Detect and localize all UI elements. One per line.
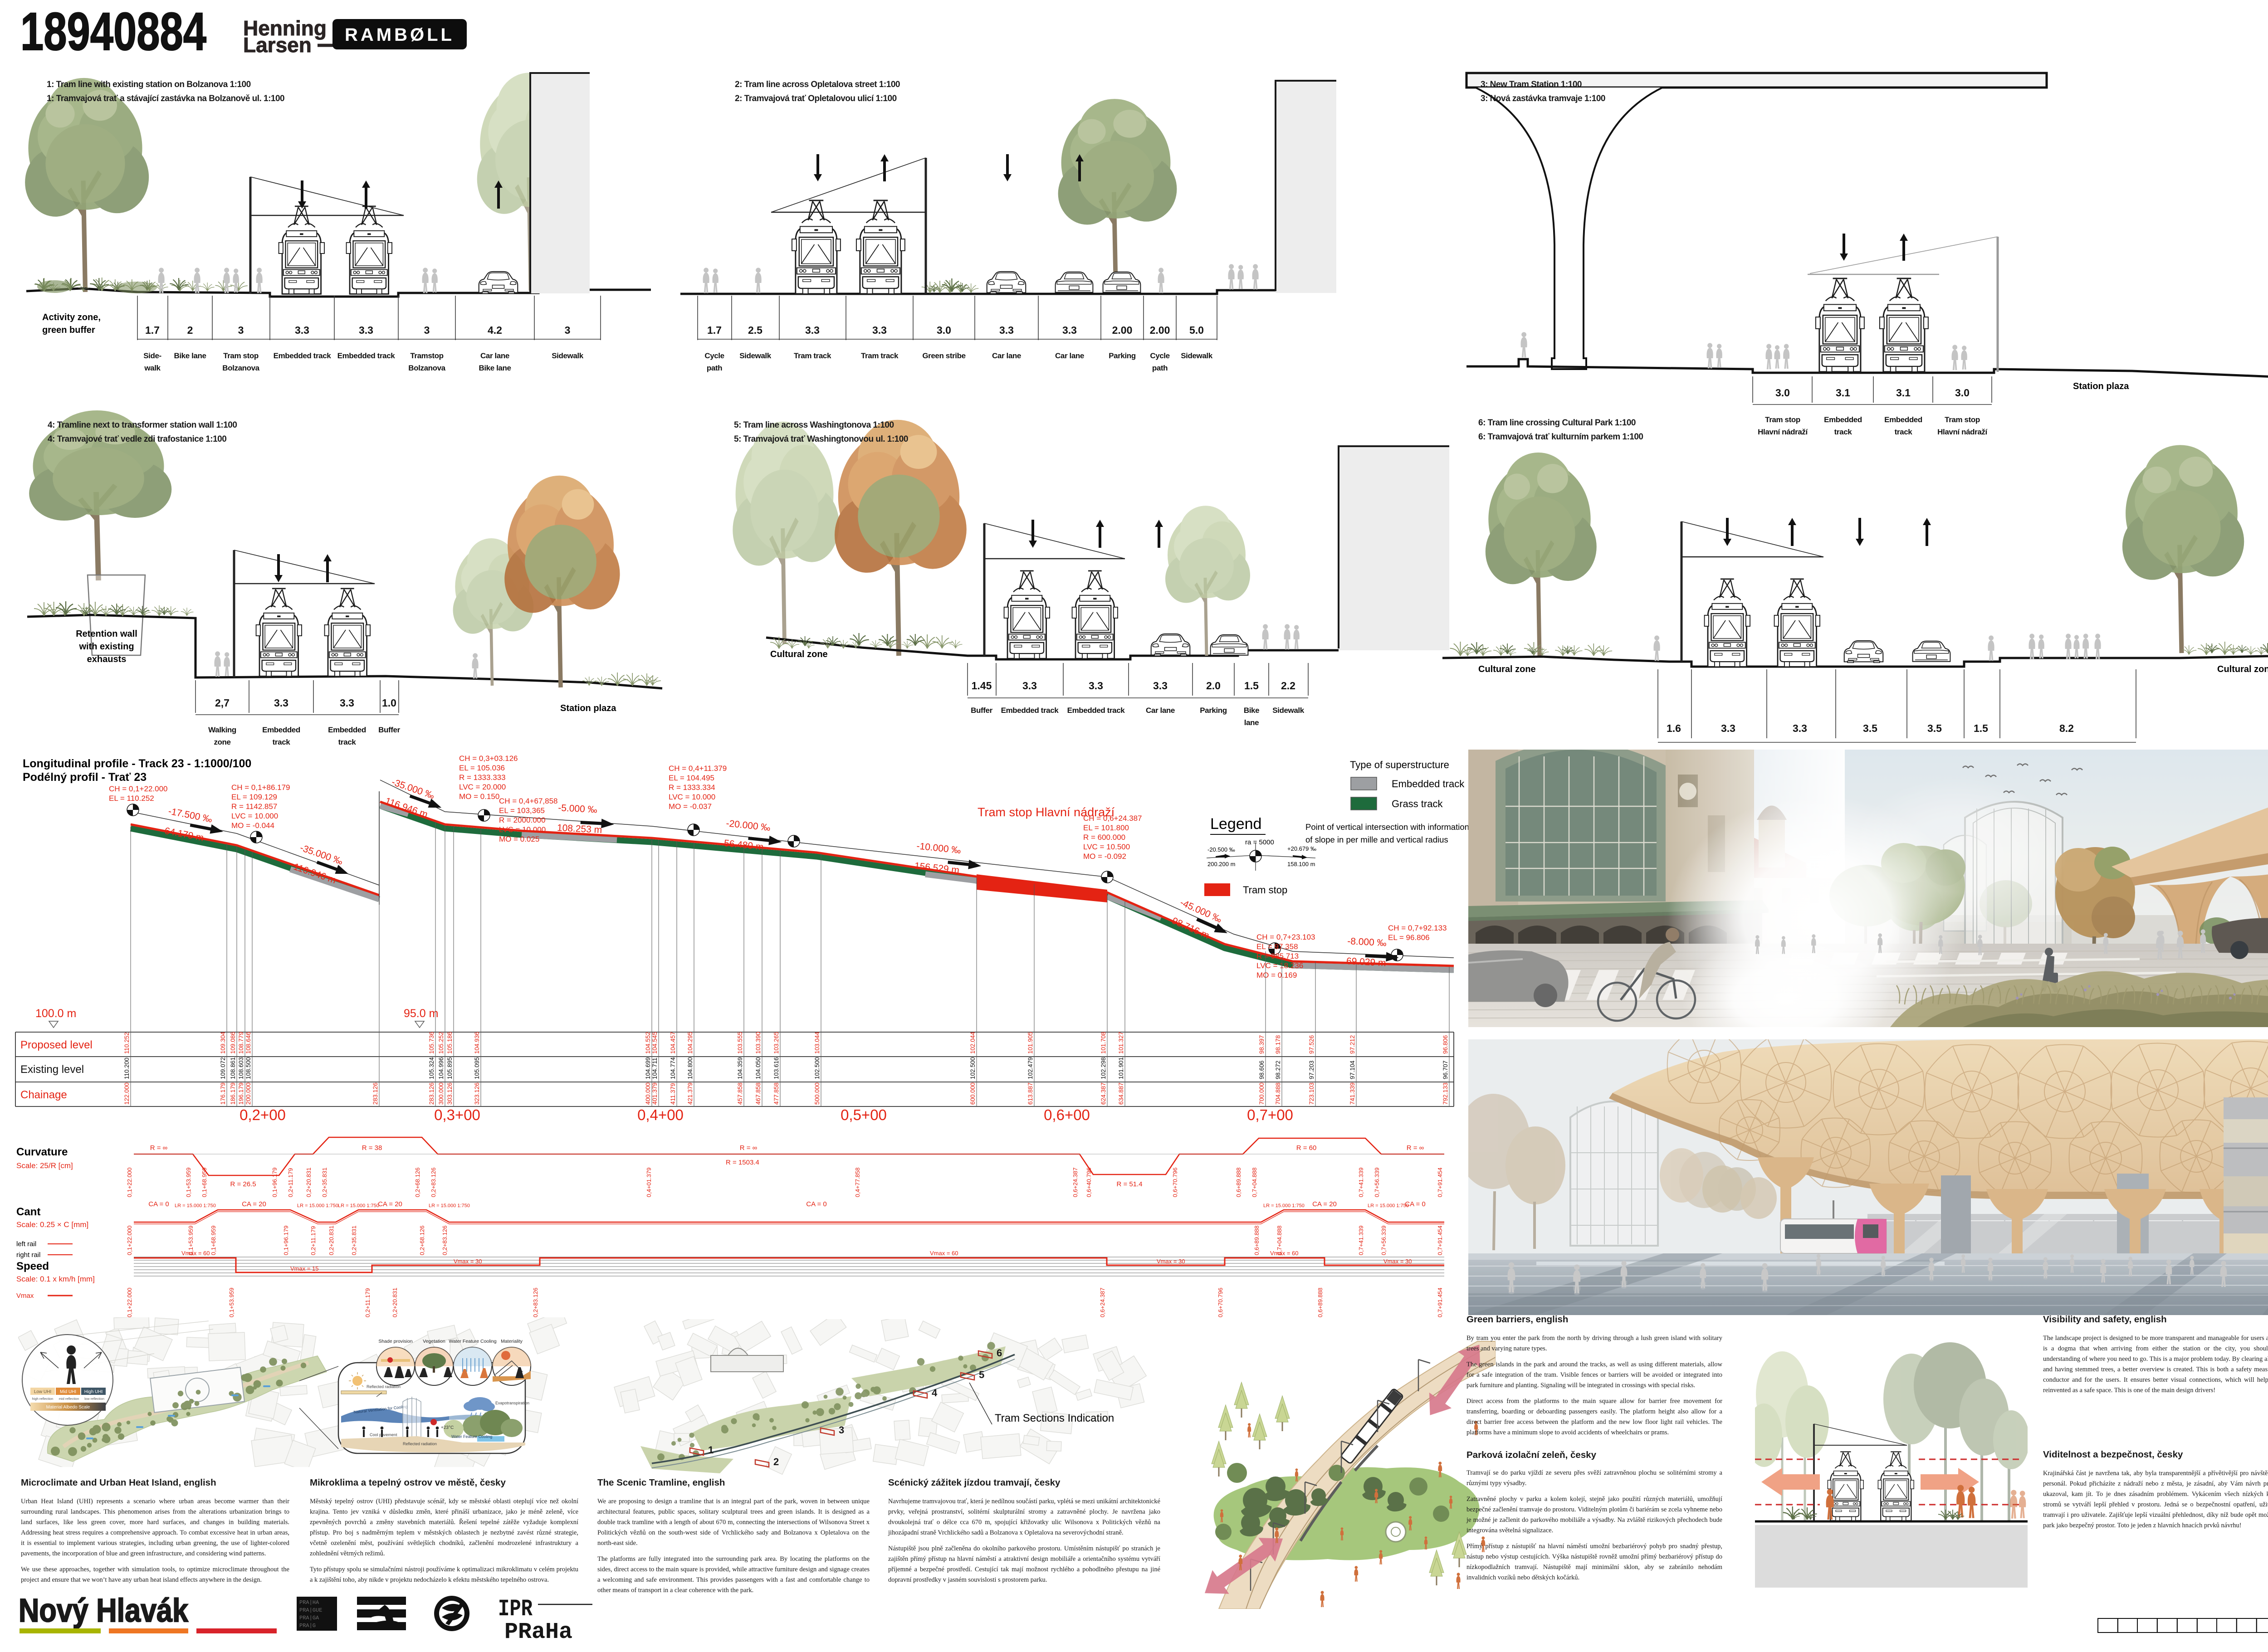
svg-text:Embedded: Embedded bbox=[1824, 415, 1862, 424]
svg-text:1.5: 1.5 bbox=[1974, 722, 1988, 734]
svg-text:R = 1333.333: R = 1333.333 bbox=[459, 773, 506, 782]
svg-text:0,6+24.387: 0,6+24.387 bbox=[1072, 1168, 1079, 1197]
svg-text:0,7+56.339: 0,7+56.339 bbox=[1374, 1168, 1380, 1197]
svg-text:108.861: 108.861 bbox=[230, 1057, 236, 1079]
svg-text:6: Tram line crossing Cultural: 6: Tram line crossing Cultural Park 1:10… bbox=[1478, 418, 1636, 428]
svg-text:104.050: 104.050 bbox=[755, 1057, 762, 1079]
svg-text:-17.500 ‰: -17.500 ‰ bbox=[167, 806, 213, 824]
svg-text:R = ∞: R = ∞ bbox=[1407, 1144, 1424, 1152]
svg-text:Bike lane: Bike lane bbox=[174, 351, 206, 360]
svg-text:with existing: with existing bbox=[78, 642, 134, 652]
svg-text:477.858: 477.858 bbox=[773, 1082, 780, 1105]
svg-text:Low UHI: Low UHI bbox=[34, 1389, 51, 1394]
svg-text:MO = -0.092: MO = -0.092 bbox=[1083, 852, 1126, 861]
svg-text:3.3: 3.3 bbox=[805, 324, 820, 336]
svg-text:Scale: 0.1 x km/h [mm]: Scale: 0.1 x km/h [mm] bbox=[16, 1275, 95, 1283]
svg-text:69.029 m: 69.029 m bbox=[1346, 956, 1386, 969]
svg-text:104.699: 104.699 bbox=[645, 1057, 651, 1079]
svg-text:track: track bbox=[1834, 428, 1853, 436]
svg-text:Evapotranspiration: Evapotranspiration bbox=[495, 1401, 529, 1405]
svg-text:103.616: 103.616 bbox=[773, 1057, 780, 1079]
svg-text:EL = 110.252: EL = 110.252 bbox=[109, 794, 154, 803]
svg-text:400.000: 400.000 bbox=[645, 1082, 651, 1105]
svg-text:Embedded track: Embedded track bbox=[1001, 706, 1059, 715]
svg-text:0,1+68.959: 0,1+68.959 bbox=[201, 1168, 208, 1197]
svg-text:3: 3 bbox=[238, 324, 244, 336]
svg-text:Tram track: Tram track bbox=[861, 351, 899, 360]
svg-text:-20.500 ‰: -20.500 ‰ bbox=[1207, 846, 1235, 853]
svg-text:457.858: 457.858 bbox=[737, 1082, 743, 1105]
svg-text:Nový Hlavák: Nový Hlavák bbox=[19, 1593, 189, 1629]
svg-text:Car lane: Car lane bbox=[1146, 706, 1175, 715]
svg-text:R = 60: R = 60 bbox=[1296, 1144, 1317, 1152]
svg-text:Reflected radiation: Reflected radiation bbox=[403, 1442, 437, 1446]
svg-text:5: 5 bbox=[979, 1369, 984, 1380]
svg-text:Cultural zone: Cultural zone bbox=[2217, 664, 2268, 674]
svg-text:MO = -0.037: MO = -0.037 bbox=[669, 802, 712, 811]
svg-text:110.252: 110.252 bbox=[123, 1032, 130, 1054]
svg-text:110.200: 110.200 bbox=[123, 1057, 130, 1079]
svg-text:467.858: 467.858 bbox=[755, 1082, 762, 1105]
svg-text:8.2: 8.2 bbox=[2059, 722, 2074, 734]
svg-text:Cultural zone: Cultural zone bbox=[770, 649, 828, 659]
svg-text:98.272: 98.272 bbox=[1275, 1061, 1281, 1079]
svg-text:104.800: 104.800 bbox=[687, 1057, 694, 1079]
svg-text:3.5: 3.5 bbox=[1863, 722, 1877, 734]
svg-text:+23°C: +23°C bbox=[441, 1425, 454, 1430]
svg-text:0,1+22.000: 0,1+22.000 bbox=[126, 1226, 133, 1255]
svg-text:105.252: 105.252 bbox=[438, 1032, 445, 1054]
svg-text:High UHI: High UHI bbox=[84, 1389, 103, 1394]
svg-text:EL = 97.358: EL = 97.358 bbox=[1256, 942, 1298, 951]
svg-text:EL = 96.806: EL = 96.806 bbox=[1388, 933, 1430, 942]
svg-text:EL = 103,365: EL = 103,365 bbox=[499, 806, 545, 815]
svg-text:R = 1503.4: R = 1503.4 bbox=[726, 1159, 759, 1166]
svg-text:1.7: 1.7 bbox=[707, 324, 722, 336]
svg-text:103.044: 103.044 bbox=[814, 1032, 821, 1054]
svg-text:right rail: right rail bbox=[16, 1251, 40, 1259]
svg-text:0,2+11.179: 0,2+11.179 bbox=[364, 1288, 371, 1317]
svg-text:MO = -0.044: MO = -0.044 bbox=[231, 821, 274, 830]
svg-text:0,3+00: 0,3+00 bbox=[434, 1106, 480, 1123]
svg-text:Car lane: Car lane bbox=[480, 351, 509, 360]
svg-text:Vmax = 60: Vmax = 60 bbox=[930, 1250, 958, 1257]
svg-text:Scale: 0.25 × C [mm]: Scale: 0.25 × C [mm] bbox=[16, 1220, 88, 1229]
svg-text:CH = 0,7+23.103: CH = 0,7+23.103 bbox=[1256, 933, 1315, 941]
svg-text:176.179: 176.179 bbox=[220, 1082, 226, 1105]
svg-text:Embedded: Embedded bbox=[1884, 415, 1922, 424]
svg-text:MO = 0.150: MO = 0.150 bbox=[459, 792, 499, 801]
svg-text:98.606: 98.606 bbox=[1258, 1061, 1265, 1079]
svg-text:Side-: Side- bbox=[143, 351, 161, 360]
svg-text:3.3: 3.3 bbox=[1089, 680, 1103, 692]
svg-text:108.603: 108.603 bbox=[238, 1057, 244, 1079]
svg-text:105.895: 105.895 bbox=[446, 1057, 453, 1079]
svg-text:0,7+91.454: 0,7+91.454 bbox=[1437, 1226, 1443, 1255]
svg-text:Hlavní nádraží: Hlavní nádraží bbox=[1937, 428, 1988, 436]
svg-text:track: track bbox=[273, 738, 291, 746]
svg-text:R = 1333.334: R = 1333.334 bbox=[669, 783, 715, 792]
svg-text:97.203: 97.203 bbox=[1308, 1061, 1315, 1079]
svg-text:102.500: 102.500 bbox=[814, 1057, 821, 1079]
svg-text:3.0: 3.0 bbox=[937, 324, 951, 336]
svg-text:Cant: Cant bbox=[16, 1206, 40, 1218]
svg-text:Embedded track: Embedded track bbox=[337, 351, 396, 360]
svg-text:401.379: 401.379 bbox=[651, 1082, 658, 1105]
svg-text:Water Feature Cooling: Water Feature Cooling bbox=[449, 1339, 496, 1344]
svg-text:LR = 15.000 1:750: LR = 15.000 1:750 bbox=[429, 1203, 470, 1209]
svg-text:-10.000 ‰: -10.000 ‰ bbox=[916, 841, 961, 856]
svg-text:Tram stop: Tram stop bbox=[223, 351, 259, 360]
svg-text:track: track bbox=[338, 738, 357, 746]
svg-text:3.3: 3.3 bbox=[1062, 324, 1077, 336]
svg-text:792.133: 792.133 bbox=[1442, 1082, 1449, 1105]
svg-text:LR = 15.000 1:750: LR = 15.000 1:750 bbox=[175, 1203, 216, 1209]
svg-text:LVC = 10.000: LVC = 10.000 bbox=[231, 812, 278, 820]
svg-text:Vmax = 15: Vmax = 15 bbox=[290, 1265, 319, 1272]
svg-text:Tram stop Hlavní nádraží: Tram stop Hlavní nádraží bbox=[978, 805, 1115, 819]
svg-text:500.000: 500.000 bbox=[814, 1082, 821, 1105]
svg-text:3.3: 3.3 bbox=[1793, 722, 1807, 734]
svg-text:Vmax = 30: Vmax = 30 bbox=[1383, 1258, 1412, 1265]
svg-text:624.387: 624.387 bbox=[1100, 1082, 1107, 1105]
svg-text:LVC = 10.500: LVC = 10.500 bbox=[1083, 843, 1130, 851]
svg-text:0,1+53.959: 0,1+53.959 bbox=[185, 1168, 192, 1197]
svg-text:LVC = 10.000: LVC = 10.000 bbox=[669, 793, 715, 801]
svg-text:102.500: 102.500 bbox=[969, 1057, 976, 1079]
svg-text:CH = 0,1+86.179: CH = 0,1+86.179 bbox=[231, 783, 290, 792]
svg-text:PRA|G: PRA|G bbox=[299, 1623, 316, 1629]
svg-text:track: track bbox=[1895, 428, 1913, 436]
svg-text:Tram track: Tram track bbox=[794, 351, 831, 360]
svg-text:0,4+77.858: 0,4+77.858 bbox=[854, 1168, 861, 1197]
svg-text:0,1+96.179: 0,1+96.179 bbox=[283, 1226, 289, 1255]
svg-text:104.552: 104.552 bbox=[645, 1032, 651, 1054]
svg-text:Bolzanova: Bolzanova bbox=[222, 364, 259, 372]
svg-text:Podélný profil - Trať 23: Podélný profil - Trať 23 bbox=[23, 771, 147, 784]
svg-text:lane: lane bbox=[1244, 718, 1259, 727]
svg-text:path: path bbox=[1152, 364, 1168, 372]
svg-text:0,2+20.831: 0,2+20.831 bbox=[328, 1226, 335, 1255]
svg-text:Bike lane: Bike lane bbox=[479, 364, 511, 372]
svg-text:2: Tram line across Opletalova: 2: Tram line across Opletalova street 1:… bbox=[735, 80, 900, 89]
svg-text:left rail: left rail bbox=[16, 1240, 36, 1248]
svg-text:Material Albedo Scale: Material Albedo Scale bbox=[46, 1405, 90, 1410]
svg-text:EL = 101.800: EL = 101.800 bbox=[1083, 824, 1129, 832]
svg-text:R = 51.4: R = 51.4 bbox=[1116, 1180, 1142, 1188]
svg-text:101.905: 101.905 bbox=[1027, 1032, 1034, 1054]
svg-text:105.324: 105.324 bbox=[428, 1057, 435, 1079]
svg-text:PRA|HA: PRA|HA bbox=[299, 1599, 319, 1606]
svg-text:2: 2 bbox=[773, 1456, 779, 1467]
svg-text:Longitudinal profile - Track 2: Longitudinal profile - Track 23 - 1:1000… bbox=[23, 757, 251, 770]
svg-text:0,7+91.454: 0,7+91.454 bbox=[1437, 1288, 1443, 1317]
svg-text:green buffer: green buffer bbox=[42, 325, 95, 335]
svg-text:PRaHa: PRaHa bbox=[504, 1619, 572, 1645]
svg-text:Vmax = 60: Vmax = 60 bbox=[181, 1250, 210, 1257]
svg-text:0,7+04.888: 0,7+04.888 bbox=[1251, 1168, 1258, 1197]
svg-text:Mid UHI: Mid UHI bbox=[60, 1389, 76, 1394]
svg-text:path: path bbox=[707, 364, 722, 372]
svg-text:Sidewalk: Sidewalk bbox=[739, 351, 772, 360]
svg-text:95.0 m: 95.0 m bbox=[404, 1007, 438, 1020]
svg-text:4.2: 4.2 bbox=[488, 324, 502, 336]
svg-text:101.708: 101.708 bbox=[1100, 1032, 1107, 1054]
svg-text:108.646: 108.646 bbox=[245, 1032, 252, 1054]
svg-text:3: New Tram Station 1:100: 3: New Tram Station 1:100 bbox=[1481, 80, 1582, 89]
svg-text:Grass track: Grass track bbox=[1392, 798, 1443, 809]
svg-text:0,6+70.796: 0,6+70.796 bbox=[1217, 1288, 1224, 1317]
svg-text:105.186: 105.186 bbox=[446, 1032, 453, 1054]
svg-text:3.3: 3.3 bbox=[1153, 680, 1168, 692]
svg-text:CH = 0,1+22.000: CH = 0,1+22.000 bbox=[109, 785, 167, 793]
svg-text:+20.679 ‰: +20.679 ‰ bbox=[1287, 845, 1316, 852]
svg-text:CA = 0: CA = 0 bbox=[806, 1200, 826, 1208]
svg-text:Sidewalk: Sidewalk bbox=[1181, 351, 1213, 360]
svg-text:R = 38: R = 38 bbox=[362, 1144, 382, 1152]
svg-text:97.526: 97.526 bbox=[1308, 1035, 1315, 1054]
svg-text:MO = 0.025: MO = 0.025 bbox=[499, 835, 539, 843]
svg-text:LR = 15.000 1:750: LR = 15.000 1:750 bbox=[338, 1203, 379, 1209]
svg-text:634.887: 634.887 bbox=[1118, 1082, 1124, 1105]
svg-text:116.946 m: 116.946 m bbox=[292, 862, 337, 886]
svg-text:1.5: 1.5 bbox=[1244, 680, 1259, 692]
svg-text:Sidewalk: Sidewalk bbox=[552, 351, 584, 360]
svg-text:Cool pavement: Cool pavement bbox=[370, 1433, 397, 1437]
svg-text:3: 3 bbox=[839, 1424, 844, 1436]
svg-text:108.779: 108.779 bbox=[238, 1032, 244, 1054]
svg-text:R = 26.5: R = 26.5 bbox=[230, 1180, 256, 1188]
svg-text:0,2+11.179: 0,2+11.179 bbox=[310, 1226, 317, 1255]
svg-text:Scale: 25/R [cm]: Scale: 25/R [cm] bbox=[16, 1161, 73, 1170]
svg-text:-5.000 ‰: -5.000 ‰ bbox=[558, 803, 597, 815]
svg-text:Embedded track: Embedded track bbox=[274, 351, 332, 360]
svg-text:300.000: 300.000 bbox=[438, 1082, 445, 1105]
svg-text:0,6+00: 0,6+00 bbox=[1044, 1106, 1090, 1123]
svg-text:Station plaza: Station plaza bbox=[2073, 381, 2129, 391]
svg-text:Type of superstructure: Type of superstructure bbox=[1350, 759, 1449, 770]
svg-text:1: Tramvajová trať a stávající: 1: Tramvajová trať a stávající zastávka … bbox=[47, 94, 284, 103]
svg-text:0,2+68.126: 0,2+68.126 bbox=[414, 1168, 421, 1197]
svg-text:3.1: 3.1 bbox=[1836, 387, 1850, 399]
svg-text:0,1+96.179: 0,1+96.179 bbox=[271, 1168, 278, 1197]
svg-text:Tram stop: Tram stop bbox=[1243, 884, 1287, 896]
svg-text:0,2+11.179: 0,2+11.179 bbox=[287, 1168, 294, 1197]
svg-text:Curvature: Curvature bbox=[16, 1146, 68, 1158]
svg-text:1.0: 1.0 bbox=[382, 697, 396, 709]
svg-text:Green stribe: Green stribe bbox=[922, 351, 965, 360]
svg-text:-20.000 ‰: -20.000 ‰ bbox=[725, 818, 771, 833]
svg-text:3.3: 3.3 bbox=[295, 324, 309, 336]
svg-text:Legend: Legend bbox=[1210, 815, 1261, 833]
svg-text:Vmax = 60: Vmax = 60 bbox=[1270, 1250, 1299, 1257]
svg-text:0,4+00: 0,4+00 bbox=[637, 1106, 684, 1123]
svg-text:186.179: 186.179 bbox=[230, 1082, 236, 1105]
svg-text:LR = 15.000 1:750: LR = 15.000 1:750 bbox=[297, 1203, 338, 1209]
svg-text:CA = 0: CA = 0 bbox=[148, 1200, 169, 1208]
svg-text:104.711: 104.711 bbox=[651, 1057, 658, 1079]
svg-text:Retention wall: Retention wall bbox=[76, 629, 137, 639]
svg-text:0,7+91.454: 0,7+91.454 bbox=[1437, 1168, 1443, 1197]
svg-text:0,7+41.339: 0,7+41.339 bbox=[1358, 1226, 1364, 1255]
svg-text:Proposed level: Proposed level bbox=[20, 1039, 93, 1051]
svg-text:723.103: 723.103 bbox=[1308, 1082, 1315, 1105]
svg-text:zone: zone bbox=[214, 738, 230, 746]
svg-text:Embedded: Embedded bbox=[328, 726, 366, 734]
svg-text:CH = 0,7+92.133: CH = 0,7+92.133 bbox=[1388, 924, 1447, 932]
svg-text:0,2+35.831: 0,2+35.831 bbox=[351, 1226, 357, 1255]
svg-text:109.304: 109.304 bbox=[220, 1032, 226, 1054]
svg-text:3.3: 3.3 bbox=[872, 324, 887, 336]
svg-text:Embedded track: Embedded track bbox=[1392, 778, 1465, 789]
svg-text:Activity zone,: Activity zone, bbox=[42, 312, 101, 322]
svg-text:Cycle: Cycle bbox=[704, 351, 724, 360]
svg-text:283.126: 283.126 bbox=[372, 1082, 379, 1105]
svg-text:2,7: 2,7 bbox=[215, 697, 230, 709]
svg-text:R = 600.000: R = 600.000 bbox=[1083, 833, 1125, 842]
svg-text:0,6+40.796: 0,6+40.796 bbox=[1085, 1168, 1092, 1197]
svg-text:mid reflection: mid reflection bbox=[59, 1397, 79, 1401]
svg-text:Materiality: Materiality bbox=[501, 1339, 523, 1344]
svg-text:2.2: 2.2 bbox=[1281, 680, 1295, 692]
svg-text:97.212: 97.212 bbox=[1349, 1035, 1356, 1054]
svg-text:LVC = 10.000: LVC = 10.000 bbox=[499, 825, 546, 834]
svg-text:Water Feature Cooling: Water Feature Cooling bbox=[451, 1434, 492, 1439]
svg-text:CH = 0,4+11.379: CH = 0,4+11.379 bbox=[669, 764, 727, 773]
svg-text:Hlavní nádraží: Hlavní nádraží bbox=[1758, 428, 1808, 436]
svg-text:2.00: 2.00 bbox=[1150, 324, 1170, 336]
svg-text:323.126: 323.126 bbox=[474, 1082, 480, 1105]
svg-text:Point of vertical intersection: Point of vertical intersection with info… bbox=[1305, 822, 1469, 832]
svg-text:600.000: 600.000 bbox=[969, 1082, 976, 1105]
svg-text:0,2+35.831: 0,2+35.831 bbox=[321, 1168, 328, 1197]
svg-text:3.3: 3.3 bbox=[1022, 680, 1037, 692]
svg-text:Tram stop: Tram stop bbox=[1765, 415, 1800, 424]
svg-text:LVC = 20.000: LVC = 20.000 bbox=[459, 783, 506, 791]
svg-text:105.095: 105.095 bbox=[474, 1057, 480, 1079]
svg-text:0,4+01.379: 0,4+01.379 bbox=[645, 1168, 652, 1197]
svg-text:low reflection: low reflection bbox=[84, 1397, 104, 1401]
svg-text:3: Nová zastávka tramvaje 1:10: 3: Nová zastávka tramvaje 1:100 bbox=[1481, 94, 1605, 103]
svg-text:0,2+83.126: 0,2+83.126 bbox=[532, 1288, 539, 1317]
svg-text:104.457: 104.457 bbox=[670, 1032, 676, 1054]
svg-text:104.359: 104.359 bbox=[737, 1057, 743, 1079]
svg-text:IPR: IPR bbox=[498, 1596, 533, 1623]
svg-text:Tram stop: Tram stop bbox=[1945, 415, 1980, 424]
svg-text:Vmax = 30: Vmax = 30 bbox=[1157, 1258, 1185, 1265]
svg-text:96.806: 96.806 bbox=[1442, 1035, 1449, 1054]
svg-text:122.000: 122.000 bbox=[123, 1082, 130, 1105]
svg-text:3.3: 3.3 bbox=[1721, 722, 1735, 734]
svg-text:613.887: 613.887 bbox=[1027, 1082, 1034, 1105]
svg-text:PRA|GA: PRA|GA bbox=[299, 1615, 319, 1621]
svg-text:Embedded: Embedded bbox=[262, 726, 300, 734]
svg-text:101.327: 101.327 bbox=[1118, 1032, 1124, 1054]
svg-text:3: 3 bbox=[424, 324, 430, 336]
svg-text:200.200 m: 200.200 m bbox=[1207, 861, 1235, 867]
svg-text:MO = 0.169: MO = 0.169 bbox=[1256, 971, 1297, 980]
svg-text:EL = 104.495: EL = 104.495 bbox=[669, 774, 714, 782]
svg-text:6: 6 bbox=[997, 1347, 1002, 1359]
svg-text:0,6+24.387: 0,6+24.387 bbox=[1099, 1288, 1106, 1317]
svg-text:100.0 m: 100.0 m bbox=[35, 1007, 76, 1020]
svg-text:CA = 20: CA = 20 bbox=[1312, 1200, 1337, 1208]
svg-text:CH = 0,4+67,858: CH = 0,4+67,858 bbox=[499, 797, 557, 805]
svg-text:0,2+20.831: 0,2+20.831 bbox=[391, 1288, 398, 1317]
svg-text:0,2+00: 0,2+00 bbox=[240, 1106, 286, 1123]
svg-text:0,7+00: 0,7+00 bbox=[1247, 1106, 1293, 1123]
svg-text:109.086: 109.086 bbox=[230, 1032, 236, 1054]
svg-text:96.707: 96.707 bbox=[1442, 1061, 1449, 1079]
svg-text:103.265: 103.265 bbox=[773, 1032, 780, 1054]
svg-text:R = 1142.857: R = 1142.857 bbox=[231, 802, 277, 811]
svg-text:0,1+53.959: 0,1+53.959 bbox=[228, 1288, 235, 1317]
svg-text:ra = 5000: ra = 5000 bbox=[1245, 838, 1274, 846]
svg-text:3.0: 3.0 bbox=[1955, 387, 1970, 399]
svg-text:Tramstop: Tramstop bbox=[410, 351, 443, 360]
svg-text:97.104: 97.104 bbox=[1349, 1060, 1356, 1079]
svg-text:Buffer: Buffer bbox=[971, 706, 992, 715]
svg-text:741.339: 741.339 bbox=[1349, 1082, 1356, 1105]
svg-text:3: 3 bbox=[565, 324, 571, 336]
svg-text:4: 4 bbox=[932, 1387, 938, 1399]
svg-text:exhausts: exhausts bbox=[87, 654, 127, 664]
svg-text:Parking: Parking bbox=[1109, 351, 1136, 360]
svg-text:3.3: 3.3 bbox=[359, 324, 373, 336]
svg-text:0,7+41.339: 0,7+41.339 bbox=[1358, 1168, 1364, 1197]
svg-text:Walking: Walking bbox=[208, 726, 236, 734]
svg-text:Vegetation: Vegetation bbox=[423, 1339, 445, 1344]
svg-text:0,6+89.888: 0,6+89.888 bbox=[1317, 1288, 1324, 1317]
svg-text:Shade provision: Shade provision bbox=[378, 1339, 412, 1344]
svg-text:98.178: 98.178 bbox=[1275, 1035, 1281, 1054]
svg-text:0,1+22.000: 0,1+22.000 bbox=[126, 1168, 133, 1197]
svg-text:CA = 20: CA = 20 bbox=[378, 1200, 402, 1208]
svg-text:3.3: 3.3 bbox=[999, 324, 1014, 336]
svg-text:Car lane: Car lane bbox=[1055, 351, 1084, 360]
svg-text:Embedded track: Embedded track bbox=[1067, 706, 1125, 715]
svg-text:102.479: 102.479 bbox=[1027, 1057, 1034, 1079]
svg-text:1.7: 1.7 bbox=[145, 324, 160, 336]
svg-text:109.072: 109.072 bbox=[220, 1057, 226, 1079]
svg-text:5.0: 5.0 bbox=[1189, 324, 1204, 336]
svg-text:Cycle: Cycle bbox=[1150, 351, 1169, 360]
svg-text:700.000: 700.000 bbox=[1258, 1082, 1265, 1105]
svg-text:Sidewalk: Sidewalk bbox=[1272, 706, 1305, 715]
svg-text:0,2+83.126: 0,2+83.126 bbox=[441, 1226, 448, 1255]
svg-text:303.126: 303.126 bbox=[446, 1082, 453, 1105]
svg-text:R = 2000.000: R = 2000.000 bbox=[499, 816, 546, 824]
svg-text:103.390: 103.390 bbox=[755, 1032, 762, 1054]
svg-text:108.500: 108.500 bbox=[245, 1057, 252, 1079]
svg-text:102.298: 102.298 bbox=[1100, 1057, 1107, 1079]
svg-text:0,7+56.339: 0,7+56.339 bbox=[1380, 1226, 1387, 1255]
svg-text:CA = 20: CA = 20 bbox=[242, 1200, 266, 1208]
svg-text:2.00: 2.00 bbox=[1112, 324, 1133, 336]
svg-text:105.736: 105.736 bbox=[428, 1032, 435, 1054]
svg-text:Existing level: Existing level bbox=[20, 1063, 84, 1076]
svg-text:1: 1 bbox=[708, 1444, 714, 1456]
svg-text:1: Tram line with existing sta: 1: Tram line with existing station on Bo… bbox=[47, 80, 251, 89]
svg-text:0,6+89.888: 0,6+89.888 bbox=[1253, 1226, 1260, 1255]
svg-text:1.45: 1.45 bbox=[972, 680, 992, 692]
svg-text:walk: walk bbox=[144, 364, 161, 372]
svg-text:Tram Sections Indication: Tram Sections Indication bbox=[995, 1412, 1114, 1424]
svg-text:LR = 15.000 1:750: LR = 15.000 1:750 bbox=[1263, 1203, 1305, 1209]
svg-text:LVC = 18.236: LVC = 18.236 bbox=[1256, 961, 1303, 970]
svg-text:2: 2 bbox=[187, 324, 193, 336]
svg-text:200.000: 200.000 bbox=[245, 1082, 252, 1105]
